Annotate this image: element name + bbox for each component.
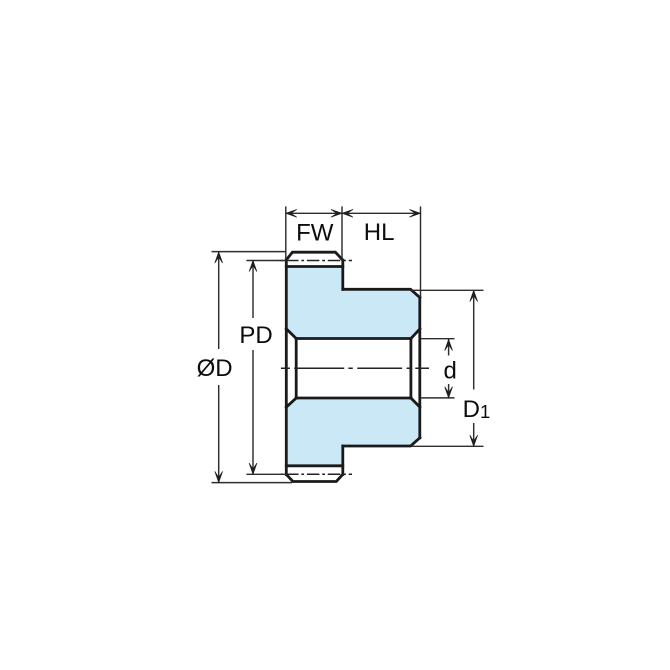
svg-text:d: d [444,358,457,385]
svg-text:FW: FW [296,220,334,247]
svg-text:D1: D1 [463,396,491,423]
svg-text:HL: HL [364,219,395,246]
svg-text:PD: PD [239,322,272,349]
svg-text:ØD: ØD [197,355,233,382]
